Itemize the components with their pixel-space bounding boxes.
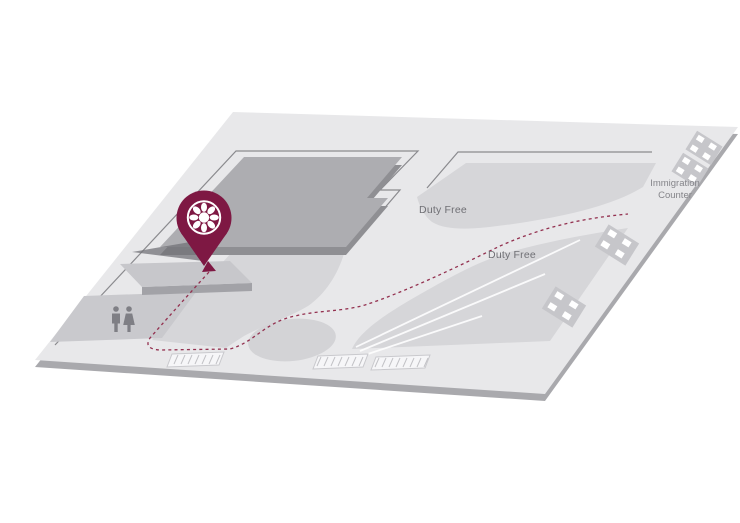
label-duty-free-lower: Duty Free	[488, 249, 536, 261]
travelator-2	[313, 354, 368, 369]
terminal-map: Duty Free Duty Free Immigration Counter	[0, 0, 740, 523]
label-immigration-counter-line1: Immigration	[650, 178, 700, 189]
rosette-logo	[188, 201, 220, 233]
travelator-3	[371, 355, 430, 370]
label-immigration-counter-line2: Counter	[658, 190, 692, 201]
ledge-top	[120, 261, 252, 287]
travelator-1	[167, 352, 224, 367]
airport-terminal-map-page: Duty Free Duty Free Immigration Counter	[0, 0, 740, 523]
label-duty-free-upper: Duty Free	[419, 204, 467, 216]
